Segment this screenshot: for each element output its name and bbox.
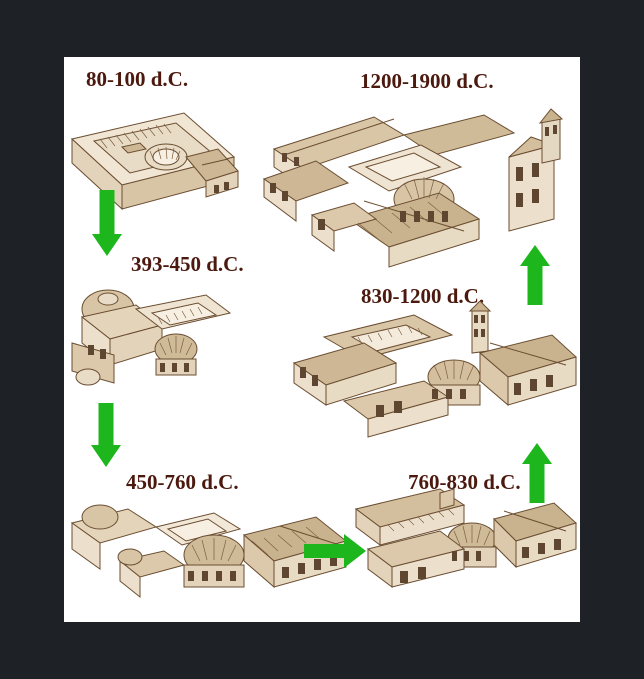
building-sketch-1200-1900	[254, 97, 580, 295]
stage-label-393-450: 393-450 d.C.	[131, 253, 244, 276]
diagram-panel: 80-100 d.C. 393-450 d.C.	[64, 57, 580, 622]
stage-label-450-760: 450-760 d.C.	[126, 471, 239, 494]
slide-background: { "window": { "background": "#1e2126", "…	[0, 0, 644, 679]
arrow-760-830-to-830-1200-up-icon	[522, 443, 552, 503]
building-sketch-830-1200	[284, 301, 580, 451]
stage-label-1200-1900: 1200-1900 d.C.	[360, 70, 494, 93]
stage-label-80-100: 80-100 d.C.	[86, 68, 188, 91]
arrow-393-450-to-450-760-down-icon	[91, 403, 121, 467]
building-sketch-393-450	[64, 279, 232, 401]
arrow-80-100-to-393-450-down-icon	[92, 190, 122, 256]
